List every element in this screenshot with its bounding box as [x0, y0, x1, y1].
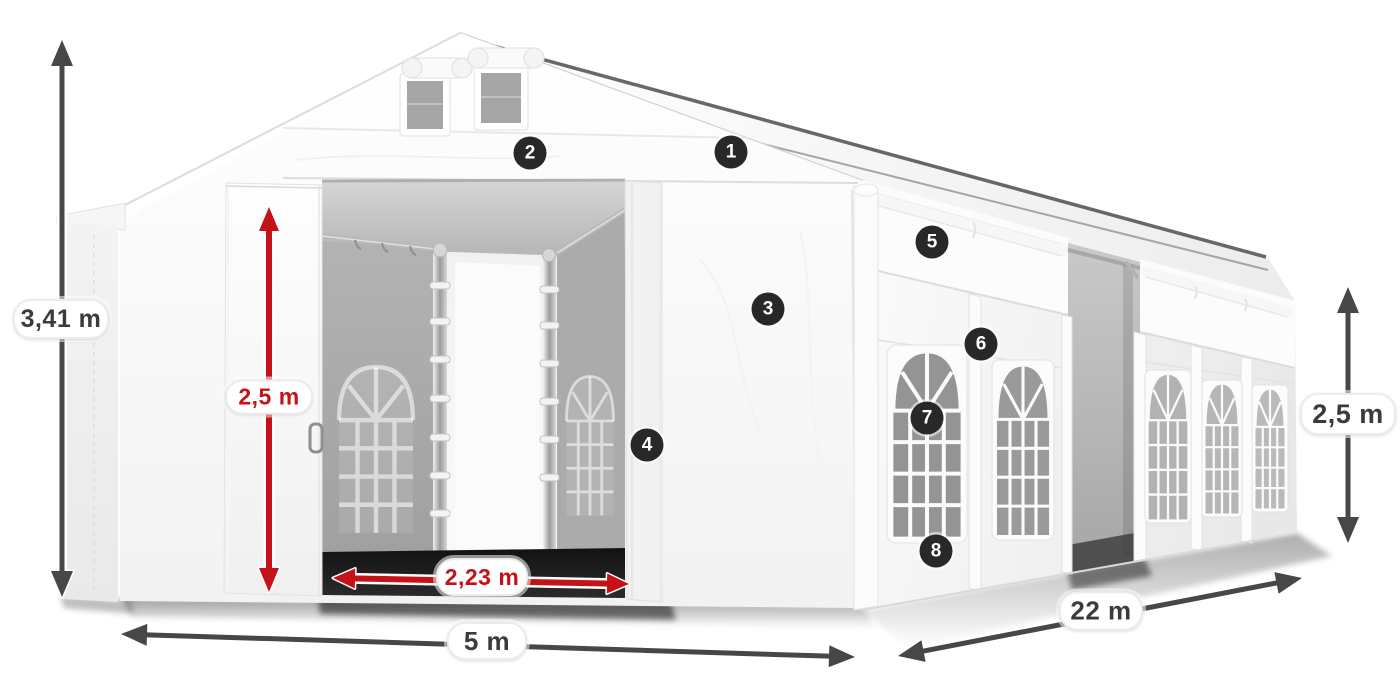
callout-badge-4: 4: [631, 429, 664, 462]
callout-badge-2: 2: [514, 137, 547, 170]
side-post-cover: [1134, 332, 1146, 561]
callout-badge-8: 8: [920, 535, 953, 568]
open-side-panel-gap: [1068, 243, 1140, 573]
dimension-value: 2,23 m: [445, 564, 520, 591]
dimension-value: 2,5 m: [238, 384, 299, 411]
callout-badge-6: 6: [965, 328, 998, 361]
front-opening-interior: [322, 179, 625, 598]
dimension-label-door-height: 2,5 m: [225, 380, 313, 415]
interior-window-outline: [566, 376, 613, 515]
side-post-cover: [1241, 357, 1252, 543]
tent-drawing: [0, 0, 1400, 700]
tent-dimensions-illustration: 3,41 m 2,5 m 2,23 m 5 m 22 m 2,5 m 1 2 3…: [0, 0, 1400, 700]
side-post-cover: [1191, 345, 1202, 551]
callout-number: 8: [931, 540, 942, 562]
callout-number: 2: [525, 142, 536, 164]
dimension-value: 5 m: [464, 626, 510, 657]
tent: [57, 33, 1297, 610]
callout-number: 3: [763, 298, 774, 320]
callout-badge-3: 3: [752, 293, 785, 326]
dimension-label-front-width: 5 m: [447, 622, 527, 660]
front-corner-post: [854, 186, 878, 610]
dimension-value: 22 m: [1070, 596, 1131, 627]
callout-badge-1: 1: [715, 136, 748, 169]
callout-number: 5: [927, 231, 938, 253]
callout-number: 1: [726, 141, 737, 163]
dimension-label-total-height: 3,41 m: [13, 299, 109, 339]
dimension-label-door-width: 2,23 m: [436, 558, 528, 596]
arched-window: [1145, 370, 1191, 523]
arched-window: [992, 360, 1054, 540]
callout-badge-7: 7: [911, 402, 944, 435]
interior-window-outline: [339, 367, 413, 533]
callout-number: 6: [976, 333, 987, 355]
arched-window: [1202, 380, 1242, 517]
dimension-label-side-length: 22 m: [1059, 592, 1143, 631]
dimension-label-side-height: 2,5 m: [1300, 393, 1396, 435]
callout-number: 7: [922, 407, 933, 429]
dimension-value: 2,5 m: [1312, 399, 1384, 430]
side-post-cover: [1062, 315, 1072, 574]
arched-window: [1252, 385, 1288, 512]
arched-window: [887, 345, 967, 543]
sliding-door-right-edge: [625, 181, 662, 602]
callout-number: 4: [642, 434, 653, 456]
callout-badge-5: 5: [916, 226, 949, 259]
dimension-value: 3,41 m: [21, 305, 102, 334]
